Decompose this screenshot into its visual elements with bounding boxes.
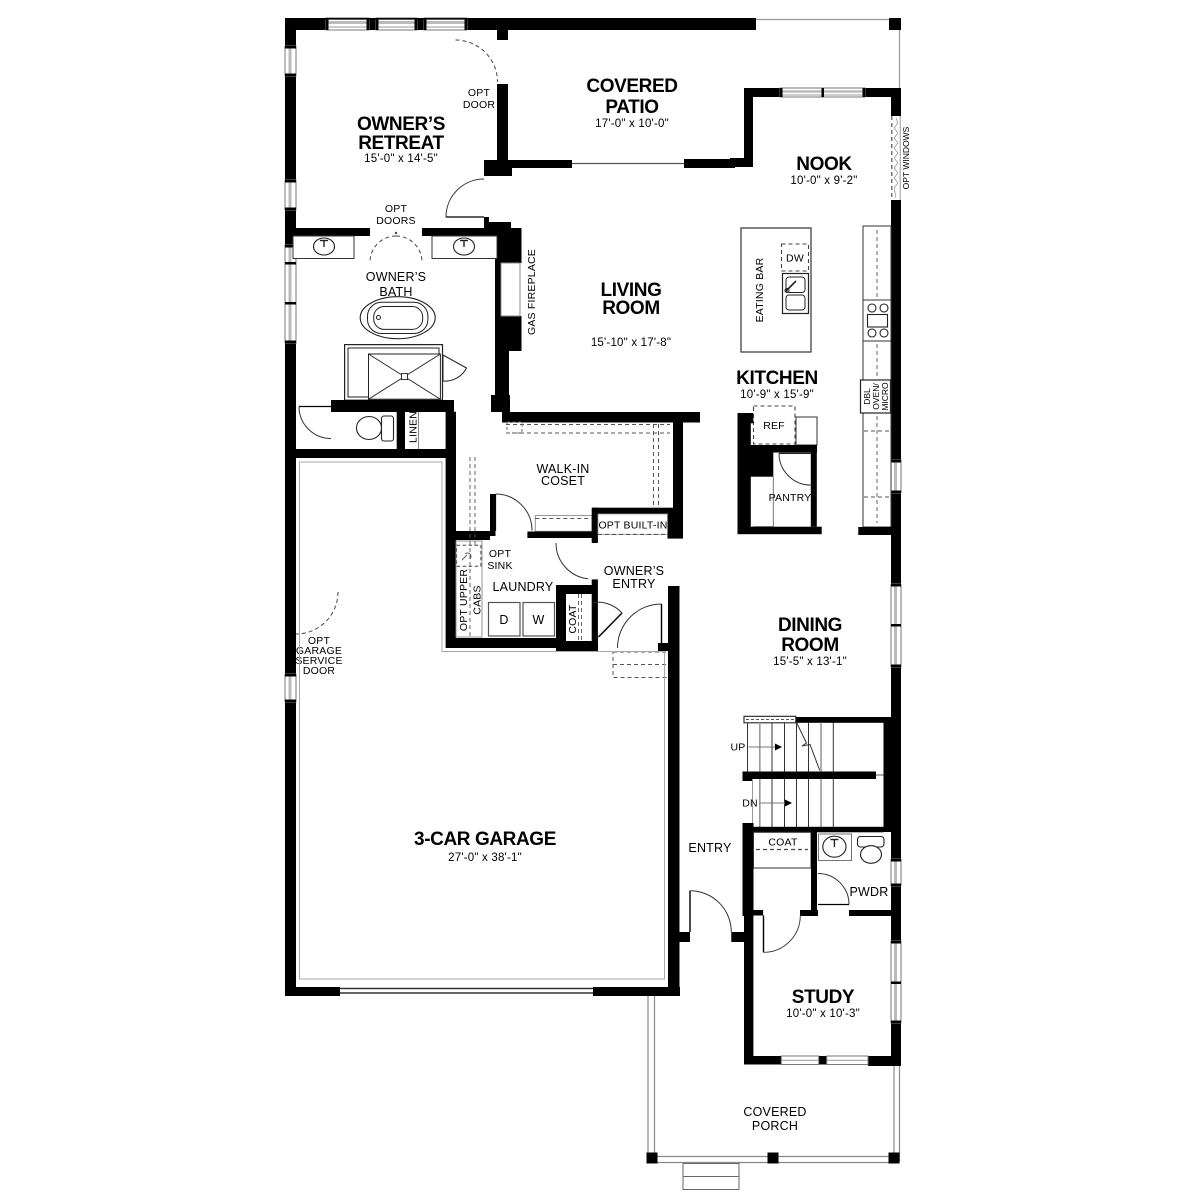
svg-text:OPT: OPT (489, 548, 512, 560)
svg-text:EATING BAR: EATING BAR (754, 257, 766, 322)
svg-text:OPT: OPT (468, 87, 491, 99)
svg-text:COVERED: COVERED (743, 1105, 806, 1119)
svg-text:KITCHEN: KITCHEN (736, 368, 818, 389)
svg-text:DW: DW (786, 253, 804, 265)
svg-text:COVERED: COVERED (586, 76, 677, 97)
svg-text:OPT WINDOWS: OPT WINDOWS (901, 126, 911, 189)
svg-text:GAS FIREPLACE: GAS FIREPLACE (526, 249, 538, 335)
svg-text:SINK: SINK (487, 560, 512, 572)
svg-text:27'-0" x 38'-1": 27'-0" x 38'-1" (448, 852, 522, 864)
svg-text:3-CAR GARAGE: 3-CAR GARAGE (414, 829, 556, 850)
svg-text:DOORS: DOORS (376, 215, 416, 227)
svg-text:OPT UPPER: OPT UPPER (458, 569, 470, 632)
svg-text:STUDY: STUDY (792, 987, 855, 1008)
svg-text:10'-9" x 15'-9": 10'-9" x 15'-9" (740, 389, 814, 401)
svg-text:DOOR: DOOR (303, 665, 336, 677)
svg-text:COAT: COAT (768, 837, 798, 849)
svg-text:15'-10" x 17'-8": 15'-10" x 17'-8" (591, 337, 671, 349)
svg-text:10'-0" x 9'-2": 10'-0" x 9'-2" (790, 175, 857, 187)
svg-text:OPT: OPT (385, 203, 408, 215)
svg-text:DN: DN (742, 798, 758, 810)
svg-text:15'-5" x 13'-1": 15'-5" x 13'-1" (773, 656, 847, 668)
svg-text:MICRO: MICRO (880, 382, 890, 411)
svg-text:D: D (499, 613, 508, 627)
svg-text:DOOR: DOOR (463, 99, 496, 111)
svg-text:REF: REF (763, 420, 785, 432)
svg-text:15'-0" x 14'-5": 15'-0" x 14'-5" (364, 153, 438, 165)
svg-text:PANTRY: PANTRY (769, 492, 812, 504)
svg-text:RETREAT: RETREAT (358, 133, 444, 154)
svg-text:LAUNDRY: LAUNDRY (493, 580, 554, 594)
svg-text:17'-0" x 10'-0": 17'-0" x 10'-0" (595, 118, 669, 130)
svg-text:OWNER’S: OWNER’S (604, 564, 664, 578)
svg-text:LINEN: LINEN (408, 411, 420, 443)
svg-text:W: W (533, 613, 545, 627)
svg-text:ENTRY: ENTRY (612, 577, 656, 591)
svg-text:COSET: COSET (541, 474, 585, 488)
svg-text:ROOM: ROOM (602, 298, 660, 319)
svg-text:OWNER’S: OWNER’S (357, 114, 445, 135)
svg-text:PATIO: PATIO (605, 97, 658, 118)
svg-text:ROOM: ROOM (781, 635, 839, 656)
svg-text:OWNER’S: OWNER’S (366, 270, 426, 284)
svg-text:COAT: COAT (567, 604, 579, 634)
svg-text:OPT BUILT-IN: OPT BUILT-IN (598, 520, 667, 532)
svg-text:PWDR: PWDR (850, 885, 889, 899)
svg-text:DINING: DINING (778, 615, 842, 636)
svg-text:PORCH: PORCH (752, 1119, 798, 1133)
svg-text:10'-0" x 10'-3": 10'-0" x 10'-3" (786, 1008, 860, 1020)
svg-text:ENTRY: ENTRY (688, 841, 732, 855)
svg-text:UP: UP (731, 742, 746, 754)
svg-text:CABS: CABS (472, 585, 484, 614)
svg-text:NOOK: NOOK (796, 154, 852, 175)
